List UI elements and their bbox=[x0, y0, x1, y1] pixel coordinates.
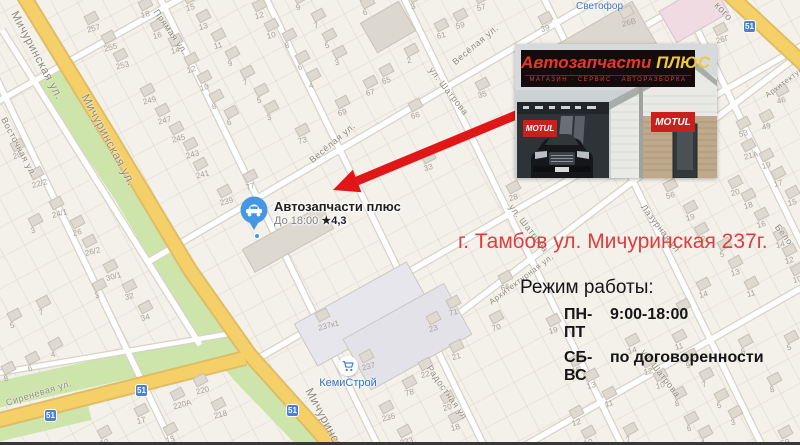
store-map-pin[interactable] bbox=[238, 196, 270, 236]
map-app[interactable]: 2572552532492472452432412391816141210861… bbox=[0, 0, 800, 445]
store-sign-main: Автозапчасти bbox=[521, 53, 651, 72]
store-sign-sub: МАГАЗИН · СЕРВИС · АВТОРАЗБОРКА bbox=[525, 75, 691, 85]
weekend-hours-row: СБ-ВС по договоренности bbox=[564, 349, 764, 385]
route-shield: 51 bbox=[743, 20, 756, 33]
store-rating: 4,3 bbox=[331, 215, 346, 227]
store-location-dot bbox=[254, 233, 260, 239]
route-shield: 51 bbox=[135, 384, 148, 397]
store-marker-label[interactable]: Автозапчасти плюс До 18:00 ★4,3 bbox=[274, 200, 401, 228]
store-marker-meta: До 18:00 ★4,3 bbox=[274, 215, 401, 228]
route-shield: 51 bbox=[286, 404, 299, 417]
address-annotation: г. Тамбов ул. Мичуринская 237г. bbox=[458, 230, 768, 254]
shopping-cart-icon bbox=[338, 356, 358, 376]
route-shield: 51 bbox=[44, 409, 57, 422]
poi-kemistroy-label: КемиСтрой bbox=[318, 377, 378, 389]
weekday-hours-row: ПН-ПТ 9:00-18:00 bbox=[564, 306, 764, 342]
storefront-photo: Автозапчасти ПЛЮС МАГАЗИН · СЕРВИС · АВТ… bbox=[515, 44, 717, 178]
poi-svetofor[interactable]: Светофор bbox=[576, 1, 623, 12]
store-sign: Автозапчасти ПЛЮС МАГАЗИН · СЕРВИС · АВТ… bbox=[521, 50, 695, 87]
working-hours-title: Режим работы: bbox=[520, 277, 764, 299]
motul-sign-right: MOTUL bbox=[651, 112, 695, 132]
star-icon: ★ bbox=[321, 215, 331, 227]
motul-banner-left: MOTUL bbox=[523, 120, 557, 137]
poi-kemistroy[interactable]: КемиСтрой bbox=[318, 356, 378, 389]
store-marker-title: Автозапчасти плюс bbox=[274, 200, 401, 215]
store-sign-accent: ПЛЮС bbox=[656, 53, 710, 72]
working-hours-annotation: Режим работы: ПН-ПТ 9:00-18:00 СБ-ВС по … bbox=[520, 277, 764, 385]
